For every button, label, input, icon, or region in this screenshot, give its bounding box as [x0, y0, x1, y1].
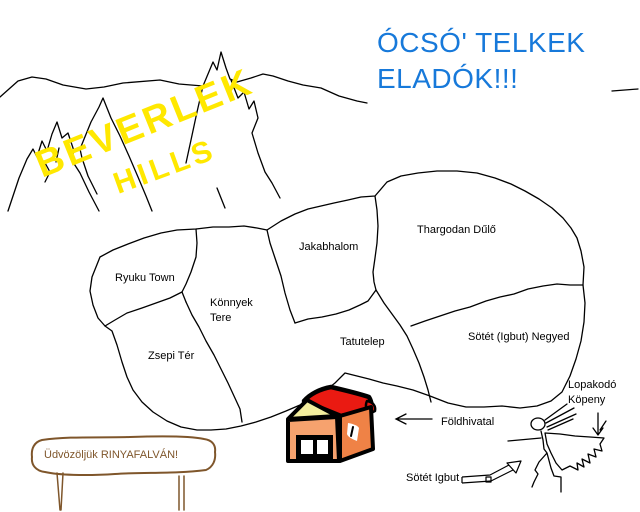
- map-canvas: BEVERLEK HILLS ÓCSÓ' TELKEK ELADÓK!!! Ry…: [0, 0, 640, 512]
- cloak-label-line1: Lopakodó: [568, 379, 616, 391]
- divider-thargodan-sotet: [411, 284, 583, 326]
- paint-drawing-map: BEVERLEK HILLS ÓCSÓ' TELKEK ELADÓK!!! Ry…: [0, 0, 640, 512]
- figure-arm: [508, 438, 541, 441]
- mountain-detail: [217, 188, 225, 208]
- figure-shine-rays: [545, 404, 576, 430]
- headline: ÓCSÓ' TELKEK ELADÓK!!!: [377, 27, 585, 94]
- region-label-konnyek-tere-line2: Tere: [210, 312, 231, 324]
- down-arrow-icon: [593, 413, 606, 435]
- cloaked-figure: [508, 404, 606, 492]
- divider-konnyek-jakabhalom: [267, 230, 295, 323]
- region-label-thargodan-dulo: Thargodan Dűlő: [417, 224, 496, 236]
- house-illustration: [288, 387, 375, 461]
- sign-text: Üdvözöljük RINYAFALVÁN!: [44, 448, 178, 461]
- divider-jakabhalom-tatutelep: [295, 290, 376, 323]
- region-label-konnyek-tere-line1: Könnyek: [210, 297, 253, 309]
- sign-post-left: [57, 473, 63, 510]
- up-right-arrow-icon: [462, 461, 521, 483]
- headline-line2: ELADÓK!!!: [377, 63, 518, 94]
- house-window-pane-left: [301, 440, 313, 454]
- welcome-sign: [32, 436, 215, 510]
- region-label-tatutelep: Tatutelep: [340, 336, 385, 348]
- region-label-zsepi-ter: Zsepi Tér: [148, 350, 195, 362]
- left-arrow-icon: [396, 414, 432, 424]
- figure-head: [531, 418, 545, 430]
- horizon-line-right: [612, 89, 638, 91]
- divider-ryuku-zsepi: [105, 292, 182, 326]
- headline-line1: ÓCSÓ' TELKEK: [377, 27, 585, 58]
- land-office-label: Földhivatal: [441, 416, 494, 428]
- figure-cape: [545, 433, 604, 470]
- house-window-pane-right: [317, 440, 328, 454]
- sign-post-right: [179, 476, 184, 510]
- dark-igbut-label: Sötét Igbut: [406, 472, 459, 484]
- region-label-ryuku-town: Ryuku Town: [115, 272, 175, 284]
- divider-jakabhalom-thargodan: [373, 196, 378, 290]
- cloak-label-line2: Köpeny: [568, 394, 606, 406]
- region-label-jakabhalom: Jakabhalom: [299, 241, 358, 253]
- land-office-callout: [396, 414, 432, 424]
- region-labels: Ryuku Town Jakabhalom Thargodan Dűlő Kön…: [115, 224, 570, 362]
- divider-ryuku-konnyek: [182, 229, 197, 302]
- region-label-sotet-igbut-negyed: Sötét (Igbut) Negyed: [468, 331, 570, 343]
